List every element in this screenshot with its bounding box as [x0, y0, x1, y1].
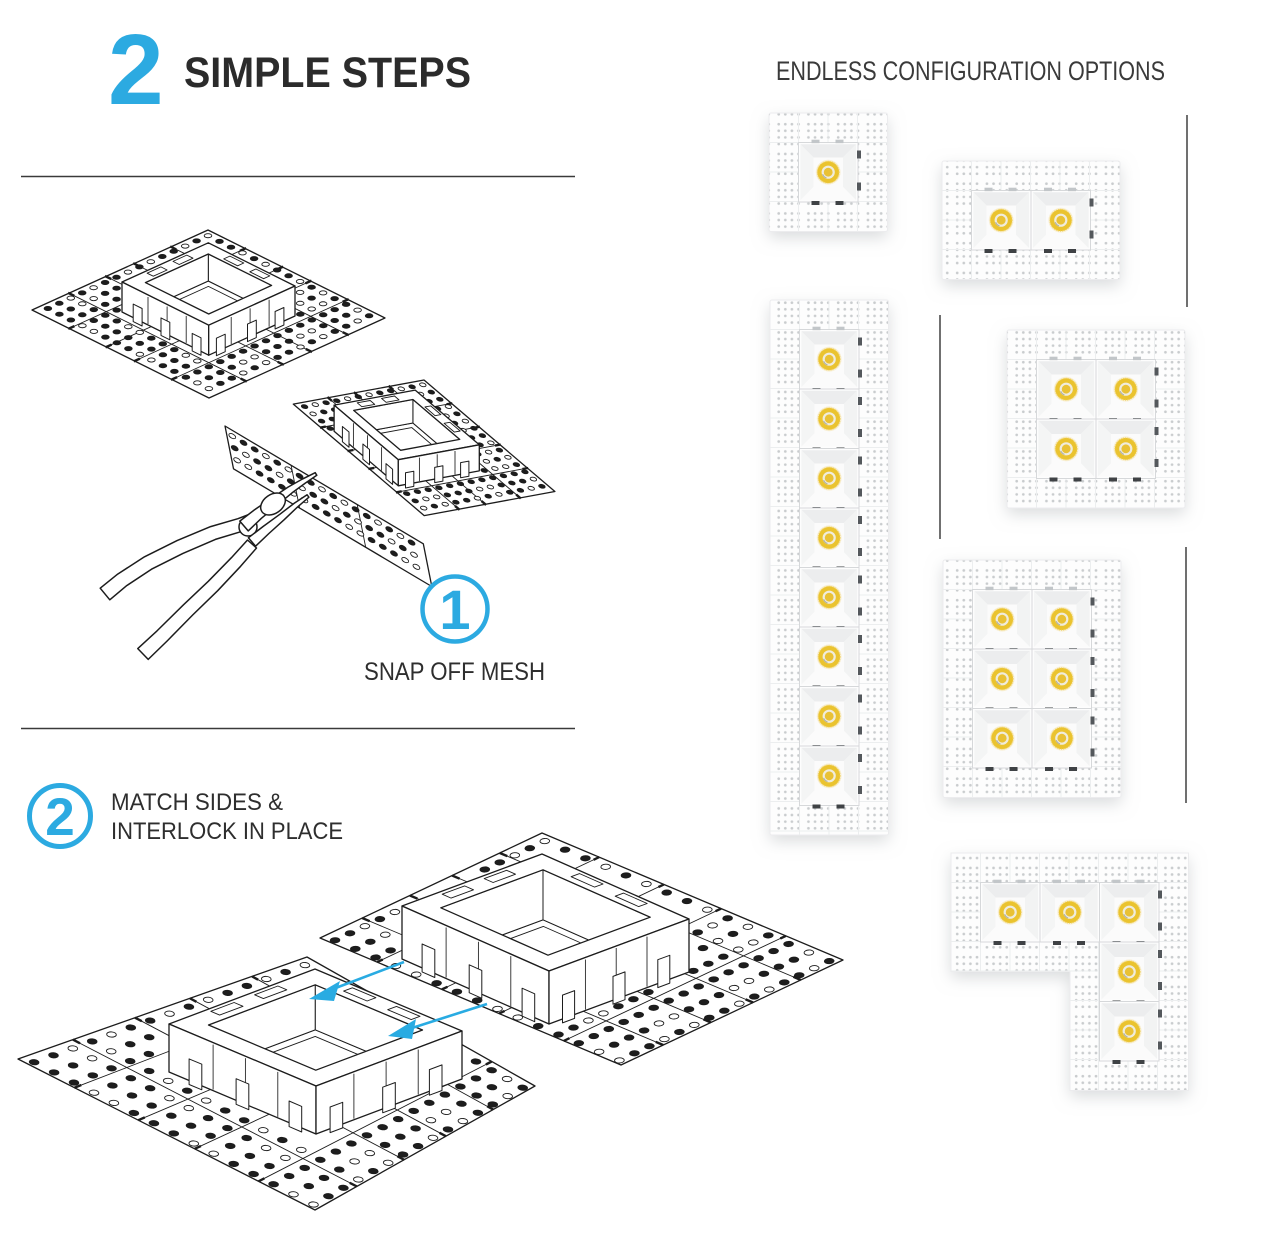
svg-text:INTERLOCK IN PLACE: INTERLOCK IN PLACE	[111, 818, 343, 845]
svg-text:1: 1	[439, 578, 470, 641]
svg-text:MATCH SIDES &: MATCH SIDES &	[111, 789, 283, 816]
svg-text:2: 2	[108, 14, 164, 126]
svg-text:ENDLESS CONFIGURATION OPTIONS: ENDLESS CONFIGURATION OPTIONS	[776, 56, 1165, 86]
svg-text:SIMPLE STEPS: SIMPLE STEPS	[184, 49, 471, 97]
svg-text:SNAP OFF MESH: SNAP OFF MESH	[364, 658, 545, 686]
svg-text:2: 2	[45, 788, 74, 847]
